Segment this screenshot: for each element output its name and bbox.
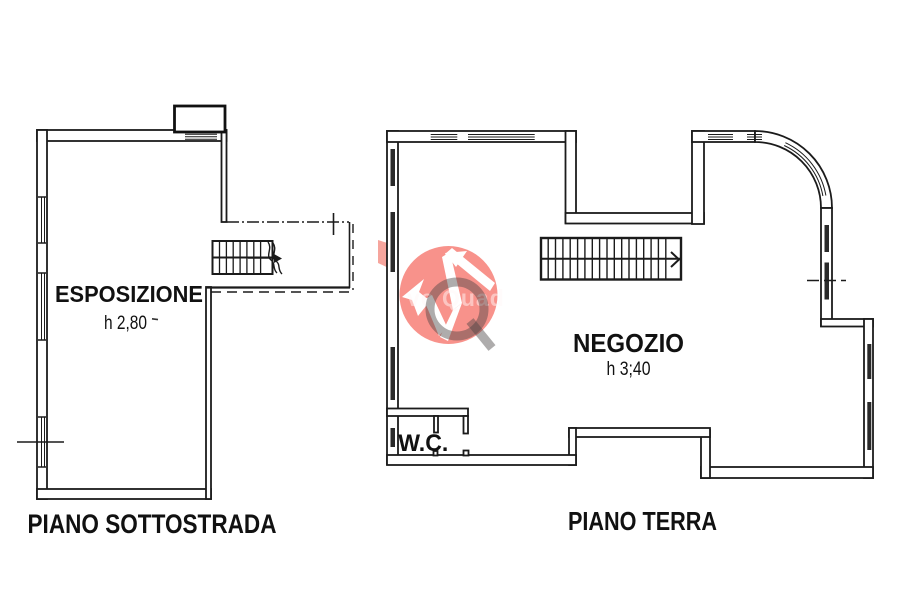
svg-text:PIANO TERRA: PIANO TERRA [568,506,717,536]
svg-text:NEGOZIO: NEGOZIO [573,328,684,358]
svg-text:ESPOSIZIONE: ESPOSIZIONE [55,281,203,307]
svg-text:h 3;40: h 3;40 [607,359,651,380]
svg-text:PIANO SOTTOSTRADA: PIANO SOTTOSTRADA [28,509,277,539]
svg-text:h 2,80: h 2,80 [104,313,147,334]
svg-text:W.C.: W.C. [398,430,448,457]
svg-text:ve Quad: ve Quad [407,285,505,311]
